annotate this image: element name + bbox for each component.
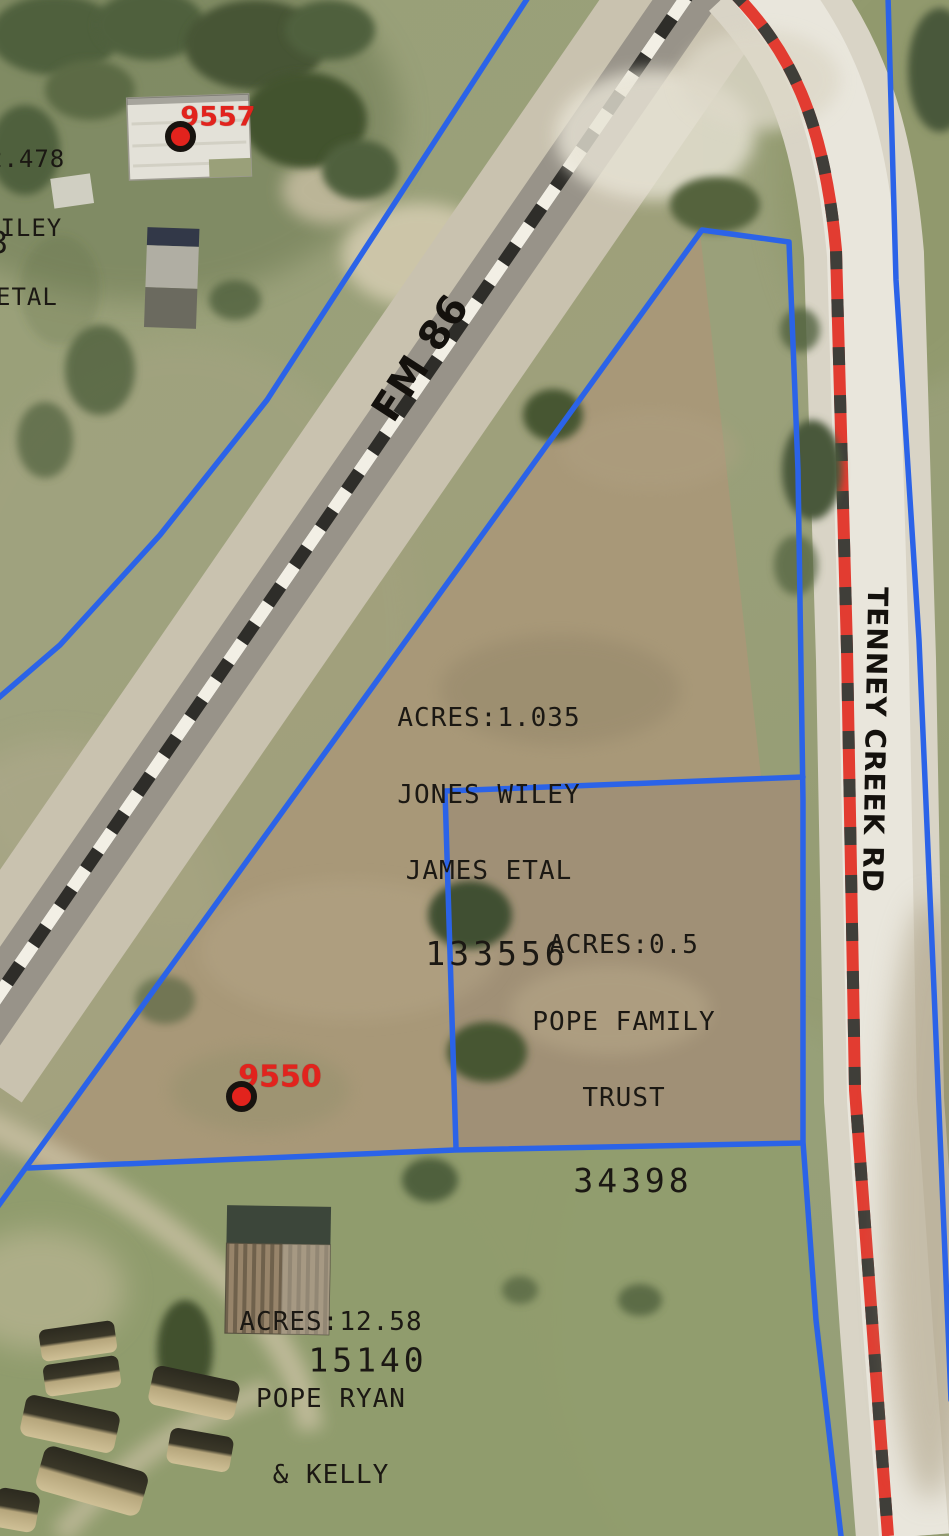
address-point-9557[interactable]	[165, 121, 196, 152]
parcel-label-west-edge: 2.478 WILEY ETAL	[0, 102, 65, 355]
shed	[144, 227, 199, 329]
parcel-id-pope-family-trust: 34398	[550, 1164, 715, 1198]
parcel-label-pope-family-trust: ACRES:0.5 POPE FAMILY TRUST 34398	[532, 882, 715, 1249]
parcel-label-pope-ryan: ACRES:12.58 POPE RYAN & KELLY	[239, 1259, 422, 1536]
parcel-id-west-edge-partial: 3	[0, 232, 9, 255]
parcel-id-pope-ryan: 15140	[308, 1341, 427, 1380]
address-point-9550[interactable]	[226, 1081, 257, 1112]
road-label-tenney-creek-rd: TENNEY CREEK RD	[856, 587, 894, 893]
parcel-map-canvas[interactable]: 2.478 WILEY ETAL 3 ACRES:1.035 JONES WIL…	[0, 0, 949, 1536]
